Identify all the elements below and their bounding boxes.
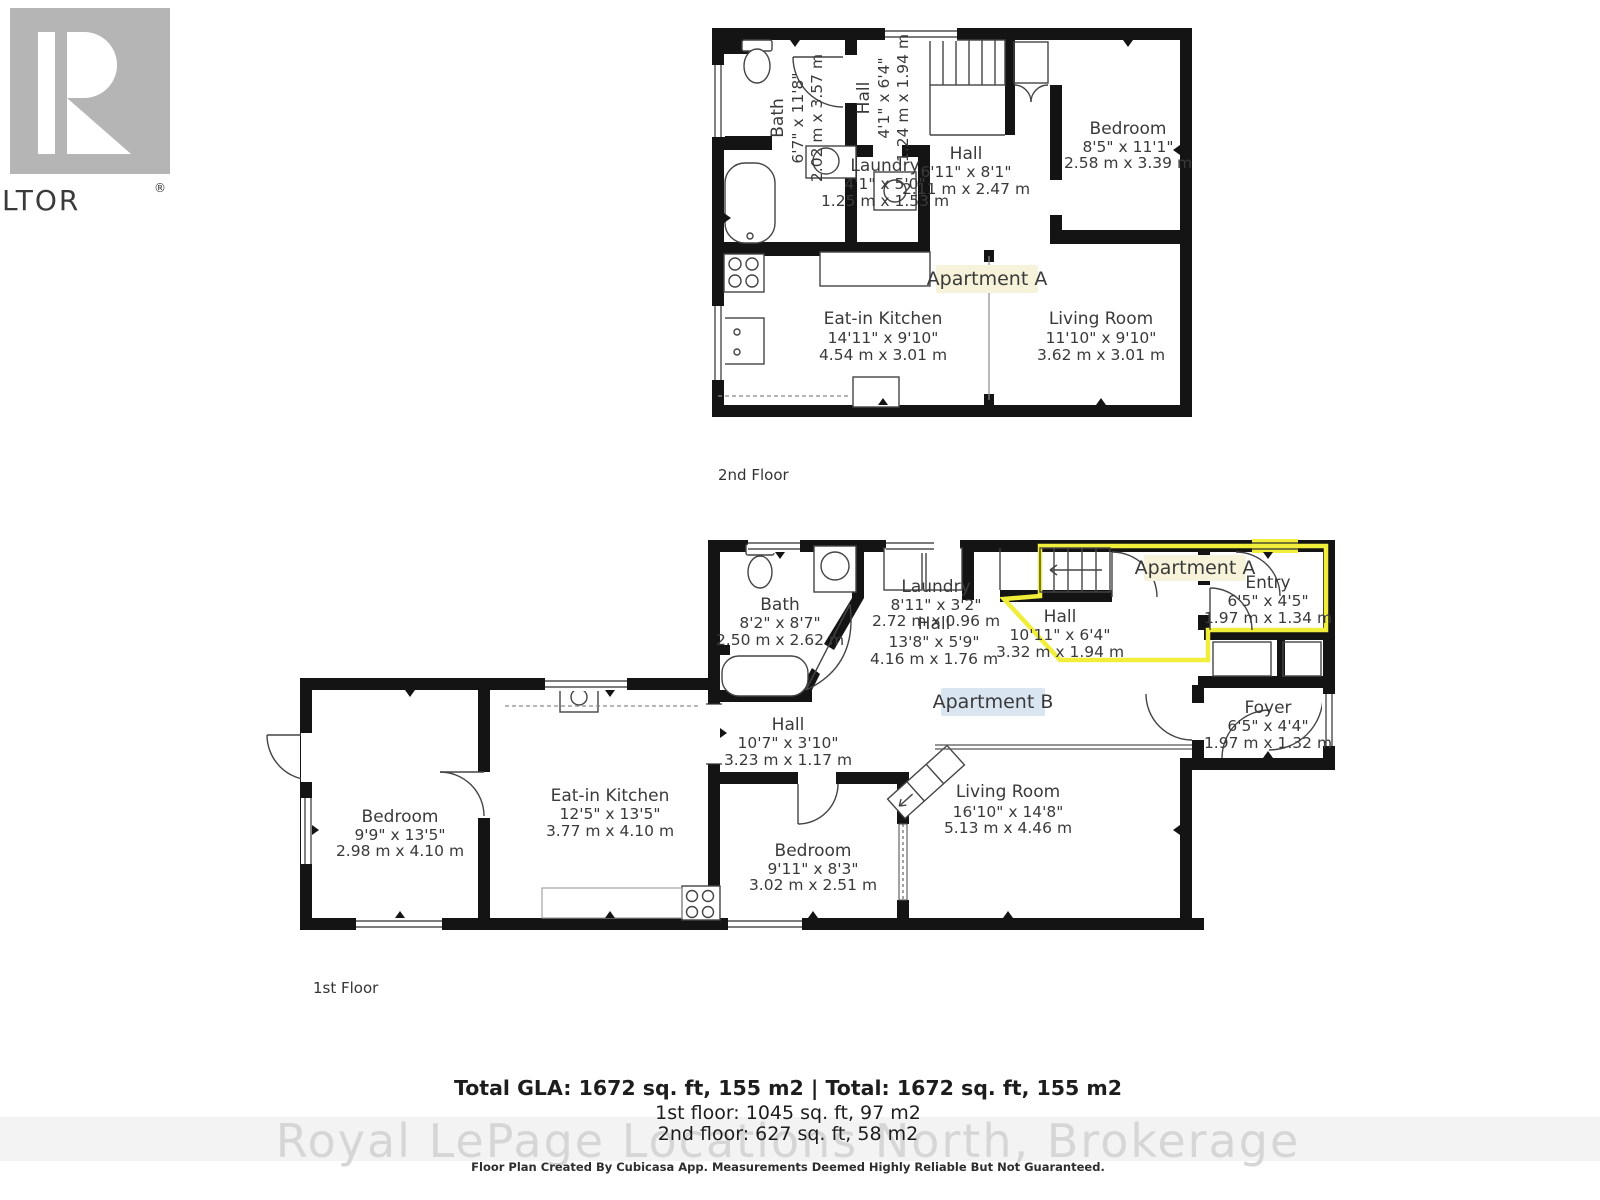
realtor-logo-label: REALTOR: [0, 184, 80, 217]
toilet-bowl-icon: [748, 556, 772, 588]
room-living-name: Living Room: [956, 782, 1060, 802]
closet-2nd-floor: [1014, 42, 1048, 102]
room-hall-m: 2.11 m x 2.47 m: [902, 180, 1030, 198]
floorplan-1st-floor: Bath 8'2" x 8'7" 2.50 m x 2.62 m Laundry…: [255, 518, 1350, 948]
room-kitchen-ft: 14'11" x 9'10": [828, 329, 939, 347]
room-hall-b-ft: 10'7" x 3'10": [738, 734, 839, 752]
counter-icon: [542, 888, 682, 918]
island-icon: [853, 377, 899, 407]
floorplan-page: REALTOR ®: [0, 0, 1600, 1200]
apartment-b-label-1st: Apartment B: [933, 691, 1054, 713]
apartment-a-tag-2nd-floor: Apartment A: [927, 265, 1048, 293]
bathtub-icon: [725, 163, 775, 243]
room-hall-a-ft: 10'11" x 6'4": [1010, 626, 1111, 644]
apartment-a-label: Apartment A: [927, 268, 1048, 290]
room-kitchen-m: 4.54 m x 3.01 m: [819, 346, 947, 364]
room-labels-2nd-floor: Bath 6'7" x 11'8" 2.02 m x 3.57 m Hall 4…: [768, 34, 1192, 364]
half-wall-railing: [935, 745, 1192, 749]
room-hall-upper-name: Hall: [854, 82, 874, 115]
room-foyer-m: 1.97 m x 1.32 m: [1204, 734, 1332, 752]
floor-label-1st: 1st Floor: [313, 979, 378, 997]
room-entry-m: 1.97 m x 1.34 m: [1204, 609, 1332, 627]
bathtub-drain-icon: [747, 233, 753, 239]
highlighted-window: [1252, 539, 1298, 553]
closets-1st-floor: [1213, 642, 1321, 676]
room-bath-name: Bath: [760, 595, 800, 615]
counter-icon: [820, 252, 930, 286]
realtor-logo: REALTOR ®: [8, 6, 188, 226]
kitchen-sink-cabinet-icon: [724, 318, 764, 364]
room-foyer-name: Foyer: [1244, 698, 1291, 718]
room-kitchen-m: 3.77 m x 4.10 m: [546, 822, 674, 840]
second-floor-area-line: 2nd floor: 627 sq. ft, 58 m2: [0, 1123, 1576, 1145]
room-hall-a-m: 3.32 m x 1.94 m: [996, 643, 1124, 661]
room-foyer-ft: 6'5" x 4'4": [1227, 717, 1308, 735]
room-bath-ft: 8'2" x 8'7": [739, 614, 820, 632]
stairs-1st-floor: [1000, 548, 1110, 592]
room-hall-name: Hall: [950, 144, 983, 164]
room-hall-ft: 6'11" x 8'1": [920, 163, 1011, 181]
room-laundry-name: Laundry: [901, 577, 970, 597]
room-hall-upper-ft: 4'1" x 6'4": [875, 57, 893, 138]
room-bath-ft: 6'7" x 11'8": [789, 72, 807, 163]
apartment-a-tag-1st-floor: Apartment A: [1135, 555, 1256, 581]
room-hall-b-m: 3.23 m x 1.17 m: [724, 751, 852, 769]
bathtub-icon: [722, 656, 808, 696]
sink-icon: [821, 552, 849, 580]
room-hall-b-name: Hall: [772, 715, 805, 735]
room-kitchen-ft: 12'5" x 13'5": [560, 805, 661, 823]
apartment-a-label-1st: Apartment A: [1135, 557, 1256, 579]
floorplan-2nd-floor: Bath 6'7" x 11'8" 2.02 m x 3.57 m Hall 4…: [690, 18, 1205, 430]
room-living-m: 3.62 m x 3.01 m: [1037, 346, 1165, 364]
room-hall-back-name: Hall: [918, 614, 951, 634]
realtor-registered-mark: ®: [154, 181, 166, 195]
total-gla-line: Total GLA: 1672 sq. ft, 155 m2 | Total: …: [0, 1076, 1576, 1100]
room-bedroom-mid-m: 3.02 m x 2.51 m: [749, 876, 877, 894]
toilet-bowl-icon: [744, 49, 770, 83]
room-hall-a-name: Hall: [1044, 607, 1077, 627]
room-entry-ft: 6'5" x 4'5": [1227, 592, 1308, 610]
floor-label-2nd: 2nd Floor: [718, 466, 789, 484]
room-bedroom-m: 2.58 m x 3.39 m: [1064, 154, 1192, 172]
room-bedroom-mid-name: Bedroom: [775, 841, 852, 861]
apartment-b-tag-1st-floor: Apartment B: [933, 688, 1054, 716]
room-bedroom-left-name: Bedroom: [362, 807, 439, 827]
room-kitchen-name: Eat-in Kitchen: [824, 309, 943, 329]
room-bath-m: 2.02 m x 3.57 m: [808, 54, 826, 182]
room-bath-name: Bath: [768, 98, 788, 138]
room-living-m: 5.13 m x 4.46 m: [944, 819, 1072, 837]
room-hall-upper-m: 1.24 m x 1.94 m: [894, 34, 912, 162]
disclaimer-text: Floor Plan Created By Cubicasa App. Meas…: [0, 1160, 1576, 1174]
room-hall-back-ft: 13'8" x 5'9": [888, 633, 979, 651]
kitchen-hall-opening: [706, 704, 722, 764]
room-living-ft: 11'10" x 9'10": [1046, 329, 1157, 347]
room-bath-m: 2.50 m x 2.62 m: [716, 631, 844, 649]
room-living-name: Living Room: [1049, 309, 1153, 329]
first-floor-area-line: 1st floor: 1045 sq. ft, 97 m2: [0, 1102, 1576, 1124]
room-bedroom-left-m: 2.98 m x 4.10 m: [336, 842, 464, 860]
room-hall-back-m: 4.16 m x 1.76 m: [870, 650, 998, 668]
room-laundry-name: Laundry: [850, 156, 919, 176]
room-bedroom-name: Bedroom: [1090, 119, 1167, 139]
stairs-2nd-floor: [930, 40, 1005, 135]
room-kitchen-name: Eat-in Kitchen: [551, 786, 670, 806]
pocket-door: [899, 824, 907, 900]
